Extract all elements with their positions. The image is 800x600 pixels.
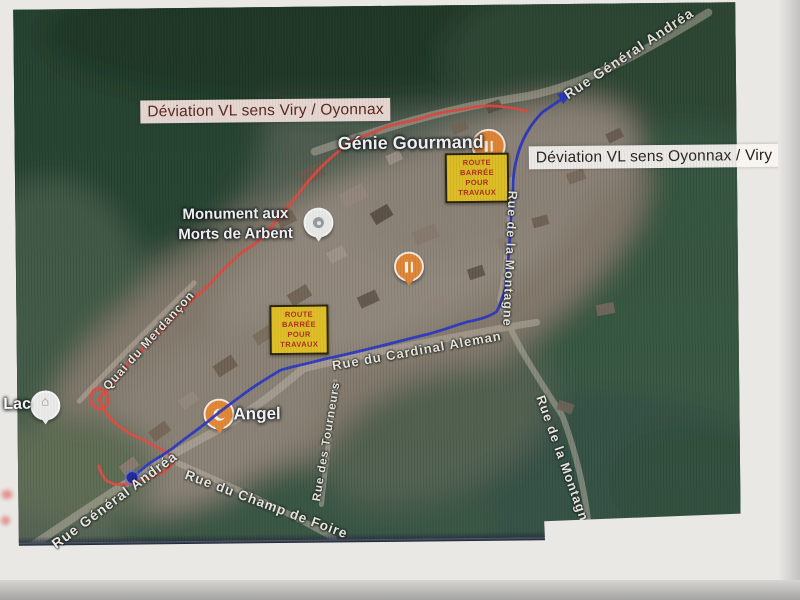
- photo-margin-bottom: [0, 580, 800, 600]
- poi-label-lac: Lac: [3, 396, 31, 414]
- street-label-rue-general-andrea: Rue Général Andréa: [561, 5, 697, 102]
- street-label-rue-des-tourneurs: Rue des Tourneurs: [311, 381, 343, 502]
- photo-margin-right: [778, 0, 800, 600]
- street-label-rue-du-cardinal-aleman: Rue du Cardinal Aleman: [331, 328, 503, 373]
- route-barree-sign: ROUTE BARRÉE POUR TRAVAUX: [445, 153, 510, 204]
- poi-label-monument: Monument aux Morts de Arbent: [155, 204, 315, 246]
- street-label-rue-de-la-montagne: Rue de la Montagne: [500, 190, 520, 327]
- sign-line: BARRÉE: [282, 320, 316, 330]
- poi-label-angel: Angel: [233, 404, 280, 424]
- poi-label-genie-gourmand: Génie Gourmand: [338, 132, 484, 155]
- table-background: [544, 511, 800, 567]
- deviation-label-viry-oyonnax: Déviation VL sens Viry / Oyonnax: [140, 98, 391, 124]
- sign-line: TRAVAUX: [280, 340, 318, 350]
- poi-label-line: Morts de Arbent: [155, 224, 315, 246]
- street-label-rue-de-la-montagne: Rue de la Montagne: [533, 393, 594, 531]
- sign-line: POUR: [465, 178, 488, 188]
- satellite-map: ⌂ Déviation VL sens Viry / Oyonnax Dévia…: [13, 2, 741, 543]
- sign-line: BARRÉE: [460, 168, 494, 178]
- sign-line: ROUTE: [463, 158, 491, 168]
- sign-line: POUR: [287, 330, 310, 340]
- deviation-label-oyonnax-viry: Déviation VL sens Oyonnax / Viry: [529, 144, 780, 170]
- poi-label-line: Monument aux: [155, 204, 315, 226]
- smudge-mark: [0, 489, 14, 500]
- sign-line: TRAVAUX: [458, 188, 496, 198]
- street-label-quai-du-merdancon: Quai du Merdançon: [100, 288, 197, 393]
- route-barree-sign: ROUTE BARRÉE POUR TRAVAUX: [269, 305, 329, 356]
- street-label-rue-general-andrea: Rue Général Andréa: [49, 448, 181, 552]
- map-annotations: Déviation VL sens Viry / Oyonnax Déviati…: [13, 2, 741, 543]
- smudge-mark: [0, 515, 11, 526]
- sign-line: ROUTE: [285, 310, 313, 320]
